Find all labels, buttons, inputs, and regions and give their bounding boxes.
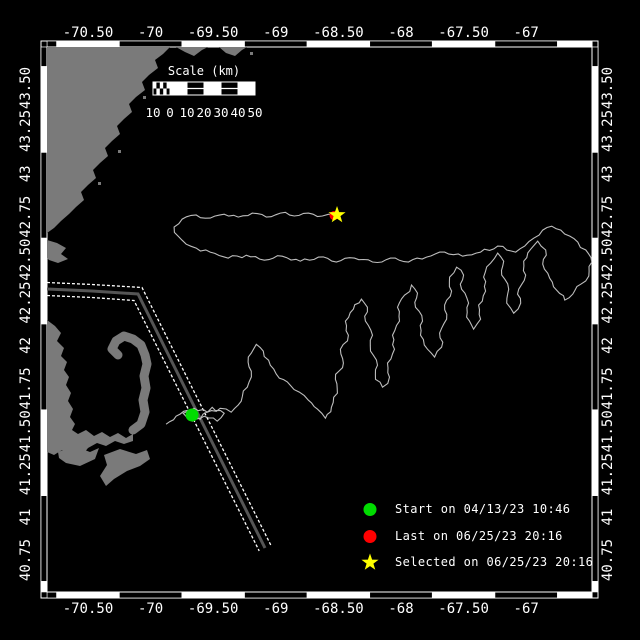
frame-block-bottom (495, 592, 558, 598)
landmass (47, 240, 68, 263)
shipping-lane-center (47, 289, 265, 548)
lon-tick-label-top: -69 (263, 25, 288, 41)
lon-tick-label-top: -67.50 (438, 25, 489, 41)
lat-tick-label-left: 42.75 (18, 196, 34, 238)
scale-cell-hatch (156, 89, 159, 96)
frame-block-top (558, 41, 593, 47)
lat-tick-label-right: 42 (600, 337, 616, 354)
frame-block-right (592, 581, 598, 591)
red-circle (364, 530, 377, 543)
start-dot-icon (360, 499, 380, 519)
frame-block-left (41, 67, 47, 153)
frame-block-left (41, 581, 47, 591)
last-dot-icon (360, 526, 380, 546)
frame-block-right (592, 324, 598, 410)
frame-block-top (370, 41, 433, 47)
lon-tick-label-bottom: -67 (514, 601, 539, 617)
scale-cell-white (238, 82, 255, 95)
islet (98, 182, 101, 185)
lat-tick-label-left: 41 (18, 509, 34, 526)
scale-cell-hatch (153, 82, 156, 89)
lat-tick-label-right: 40.75 (600, 539, 616, 581)
scale-bar-label: 10 (179, 105, 194, 120)
legend-item-start: Start on 04/13/23 10:46 (360, 499, 593, 519)
legend-last-label: Last on 06/25/23 20:16 (395, 529, 563, 543)
lat-tick-label-right: 43.25 (600, 110, 616, 152)
frame-block-right (592, 152, 598, 238)
lat-tick-label-right: 41.75 (600, 367, 616, 409)
lon-tick-label-top: -68.50 (313, 25, 364, 41)
landmass (47, 47, 170, 233)
lat-tick-label-left: 43 (18, 165, 34, 182)
legend: Start on 04/13/23 10:46 Last on 06/25/23… (360, 499, 593, 579)
lon-tick-label-top: -68 (388, 25, 413, 41)
lon-tick-label-bottom: -69 (263, 601, 288, 617)
frame-block-right (592, 238, 598, 324)
frame-block-bottom (245, 592, 308, 598)
frame-block-top (495, 41, 558, 47)
frame-block-left (41, 410, 47, 496)
lat-tick-label-left: 41.50 (18, 410, 34, 452)
frame-block-right (592, 47, 598, 67)
lon-tick-label-top: -67 (514, 25, 539, 41)
scale-cell-hatch (160, 82, 163, 89)
lat-tick-label-left: 43.50 (18, 67, 34, 109)
frame-block-left (41, 496, 47, 582)
landmass (219, 47, 247, 56)
scale-bar-title: Scale (km) (168, 64, 240, 78)
lat-tick-label-right: 41.25 (600, 453, 616, 495)
scale-bar-label: 20 (196, 105, 211, 120)
islet (143, 96, 146, 99)
frame-block-bottom (57, 592, 120, 598)
scale-bar: Scale (km)1001020304050 (145, 64, 262, 120)
yellow-star (361, 554, 378, 570)
lat-tick-label-left: 41.75 (18, 367, 34, 409)
frame-block-bottom (119, 592, 182, 598)
frame-block-top (245, 41, 308, 47)
frame-block-top (182, 41, 245, 47)
lat-tick-label-right: 41.50 (600, 410, 616, 452)
scale-bar-label: 0 (166, 105, 174, 120)
frame-block-right (592, 67, 598, 153)
frame-block-bottom (47, 592, 57, 598)
frame-block-top (119, 41, 182, 47)
legend-item-selected: Selected on 06/25/23 20:16 (360, 552, 593, 572)
lat-tick-label-right: 43 (600, 165, 616, 182)
scale-bar-label: 30 (213, 105, 228, 120)
legend-selected-label: Selected on 06/25/23 20:16 (395, 555, 593, 569)
lon-tick-label-top: -70.50 (63, 25, 114, 41)
lon-tick-label-top: -70 (138, 25, 163, 41)
lat-tick-label-right: 42.25 (600, 281, 616, 323)
selected-position-star (328, 206, 345, 222)
landmass (100, 449, 150, 486)
lon-tick-label-bottom: -67.50 (438, 601, 489, 617)
frame-block-top (57, 41, 120, 47)
scale-cell-hatch (167, 82, 170, 89)
scale-bar-label: 40 (230, 105, 245, 120)
frame-block-bottom (558, 592, 593, 598)
islet (118, 150, 121, 153)
frame-block-bottom (182, 592, 245, 598)
frame-block-top (432, 41, 495, 47)
frame-block-bottom (370, 592, 433, 598)
glider-track-viewer: -70.50-70.50-70-70-69.50-69.50-69-69-68.… (0, 0, 640, 640)
lat-tick-label-left: 43.25 (18, 110, 34, 152)
frame-block-bottom (307, 592, 370, 598)
lat-tick-label-right: 41 (600, 509, 616, 526)
lon-tick-label-bottom: -68 (388, 601, 413, 617)
lat-tick-label-left: 42.25 (18, 281, 34, 323)
landmass (176, 47, 208, 56)
lon-tick-label-top: -69.50 (188, 25, 239, 41)
lon-tick-label-bottom: -70.50 (63, 601, 114, 617)
frame-block-left (41, 324, 47, 410)
shipping-lane-edge (47, 296, 259, 551)
legend-item-last: Last on 06/25/23 20:16 (360, 526, 593, 546)
legend-start-label: Start on 04/13/23 10:46 (395, 502, 570, 516)
frame-block-top (307, 41, 370, 47)
islet (152, 62, 155, 65)
frame-block-left (41, 152, 47, 238)
lat-tick-label-right: 42.75 (600, 196, 616, 238)
green-circle (364, 503, 377, 516)
lat-tick-label-right: 43.50 (600, 67, 616, 109)
lon-tick-label-bottom: -68.50 (313, 601, 364, 617)
scale-cell-white (170, 82, 187, 95)
frame-block-top (47, 41, 57, 47)
lon-tick-label-bottom: -69.50 (188, 601, 239, 617)
frame-block-right (592, 410, 598, 496)
scale-bar-label: 10 (145, 105, 160, 120)
lon-tick-label-bottom: -70 (138, 601, 163, 617)
frame-block-left (41, 47, 47, 67)
scale-cell-hatch (163, 89, 166, 96)
lat-tick-label-right: 42.50 (600, 239, 616, 281)
scale-bar-label: 50 (247, 105, 262, 120)
selected-star-icon (360, 552, 380, 572)
start-position-dot (186, 408, 199, 421)
glider-track-path (166, 212, 592, 424)
lat-tick-label-left: 42.50 (18, 239, 34, 281)
map-plot-area (47, 47, 592, 551)
scale-cell-white (204, 82, 221, 95)
frame-block-bottom (432, 592, 495, 598)
islet (250, 52, 253, 55)
lat-tick-label-left: 41.25 (18, 453, 34, 495)
lat-tick-label-left: 42 (18, 337, 34, 354)
frame-block-left (41, 238, 47, 324)
cape-cod-arm (112, 336, 147, 430)
lat-tick-label-left: 40.75 (18, 539, 34, 581)
